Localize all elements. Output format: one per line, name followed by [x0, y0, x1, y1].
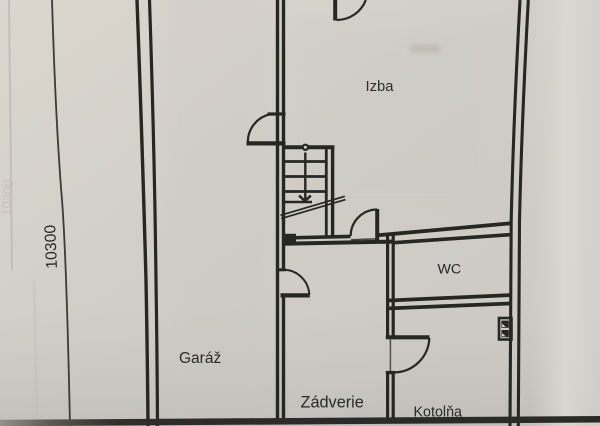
svg-text:WC: WC — [438, 262, 462, 278]
svg-text:Zádverie: Zádverie — [301, 393, 364, 411]
svg-text:Garáž: Garáž — [179, 350, 221, 367]
svg-text:10300: 10300 — [42, 224, 61, 269]
svg-text:Izba: Izba — [366, 79, 395, 95]
